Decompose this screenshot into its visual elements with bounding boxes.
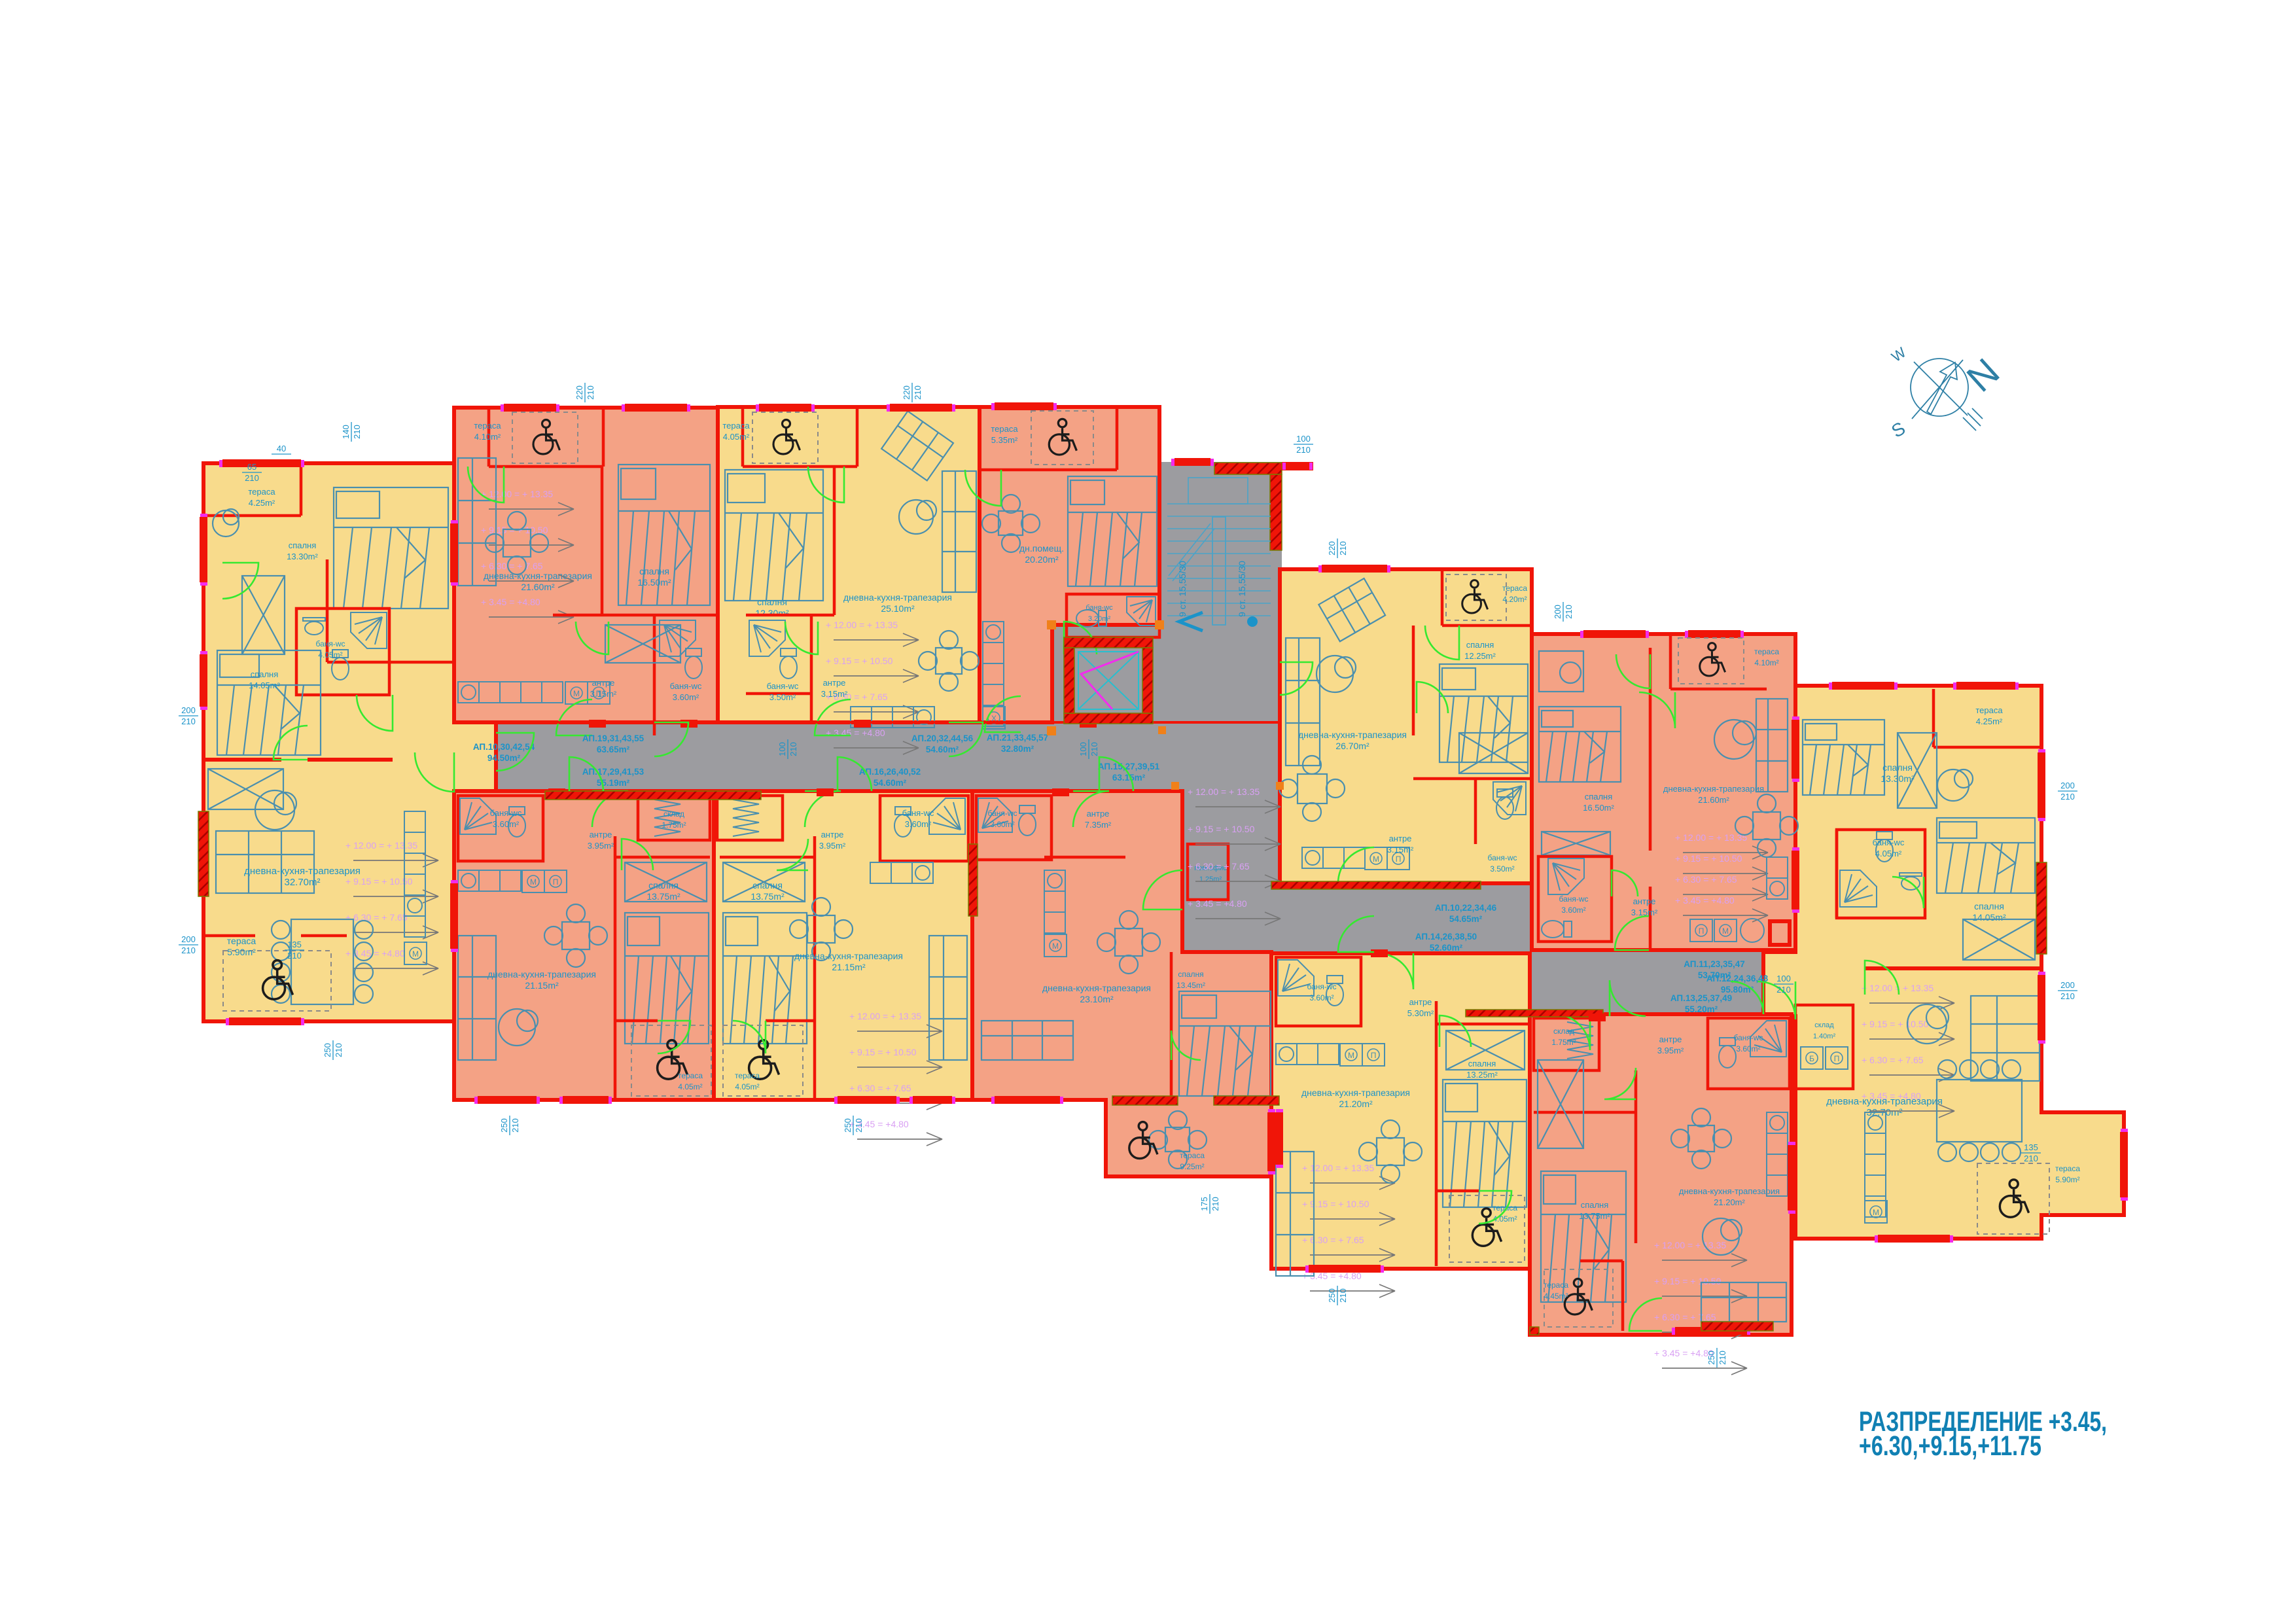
svg-text:100: 100 [777, 742, 787, 756]
svg-text:баня-wc: баня-wc [902, 808, 934, 818]
svg-text:3.50m²: 3.50m² [1490, 864, 1514, 874]
svg-text:спалня: спалня [648, 880, 679, 891]
svg-text:склад: склад [1553, 1027, 1574, 1036]
svg-text:П: П [596, 689, 602, 698]
svg-text:+ 6.30 = + 7.65: + 6.30 = + 7.65 [849, 1083, 911, 1093]
svg-text:+ 9.15 = + 10.50: + 9.15 = + 10.50 [1302, 1199, 1369, 1209]
svg-text:14.05m²: 14.05m² [249, 680, 280, 690]
svg-text:+ 6.30 = + 7.65: + 6.30 = + 7.65 [1862, 1055, 1924, 1065]
svg-text:3.60m²: 3.60m² [493, 819, 520, 829]
svg-text:40: 40 [277, 444, 286, 453]
svg-text:55.20m²: 55.20m² [1685, 1004, 1718, 1014]
svg-text:антре: антре [592, 678, 615, 688]
svg-text:АП.21,33,45,57: АП.21,33,45,57 [987, 733, 1048, 743]
svg-text:+ 12.00 = + 13.35: + 12.00 = + 13.35 [826, 620, 898, 630]
svg-text:32.70m²: 32.70m² [284, 877, 320, 888]
svg-text:210: 210 [1718, 1350, 1727, 1365]
svg-text:16.50m²: 16.50m² [1583, 803, 1614, 813]
svg-text:13.75m²: 13.75m² [751, 891, 785, 902]
svg-text:210: 210 [586, 385, 595, 400]
svg-text:баня-wc: баня-wc [767, 681, 799, 691]
svg-text:+ 3.45 = +4.80: + 3.45 = +4.80 [1862, 1091, 1921, 1101]
svg-text:3.60m²: 3.60m² [905, 819, 932, 829]
svg-text:дневна-кухня-трапезария: дневна-кухня-трапезария [794, 951, 903, 961]
svg-text:П: П [1371, 1051, 1377, 1060]
svg-text:тераса: тераса [1502, 584, 1527, 593]
svg-text:3.15m²: 3.15m² [1387, 845, 1414, 855]
svg-text:спалня: спалня [1466, 640, 1494, 650]
svg-text:210: 210 [334, 1043, 344, 1057]
svg-text:3.15m²: 3.15m² [821, 689, 848, 699]
svg-text:20.20m²: 20.20m² [1025, 554, 1059, 565]
svg-text:210: 210 [352, 425, 362, 439]
svg-text:спалня: спалня [757, 597, 787, 607]
svg-text:М: М [412, 949, 419, 959]
svg-text:94.50m²: 94.50m² [487, 753, 521, 763]
svg-text:4.25m²: 4.25m² [249, 498, 275, 508]
svg-text:Б: Б [1809, 1054, 1814, 1063]
svg-text:спалня: спалня [752, 880, 783, 891]
svg-text:антре: антре [1633, 896, 1656, 906]
svg-text:+ 3.45 = +4.80: + 3.45 = +4.80 [1188, 898, 1247, 909]
svg-text:баня-wc: баня-wc [670, 681, 702, 691]
svg-text:М: М [1373, 855, 1379, 864]
svg-text:+ 9.15 = + 10.50: + 9.15 = + 10.50 [1675, 853, 1742, 864]
svg-text:210: 210 [245, 473, 259, 483]
svg-text:26.70m²: 26.70m² [1335, 741, 1369, 751]
svg-text:АП.13,25,37,49: АП.13,25,37,49 [1670, 993, 1732, 1003]
svg-text:дневна-кухня-трапезария: дневна-кухня-трапезария [1663, 784, 1764, 794]
svg-text:+ 6.30 = + 7.65: + 6.30 = + 7.65 [1654, 1312, 1716, 1322]
svg-text:спалня: спалня [251, 669, 279, 679]
svg-text:антре: антре [1389, 834, 1412, 843]
svg-text:175: 175 [1199, 1197, 1209, 1211]
svg-text:антре: антре [1409, 997, 1432, 1007]
svg-text:12.25m²: 12.25m² [1464, 651, 1496, 661]
svg-text:14.05m²: 14.05m² [1972, 912, 2006, 923]
svg-text:100: 100 [1296, 434, 1311, 444]
svg-text:М: М [1348, 1051, 1354, 1060]
svg-text:140: 140 [341, 425, 351, 439]
svg-text:250: 250 [499, 1118, 509, 1133]
svg-text:+ 9.15 = + 10.50: + 9.15 = + 10.50 [1188, 824, 1255, 834]
svg-text:тераса: тераса [1544, 1280, 1568, 1290]
svg-text:1.40m²: 1.40m² [1813, 1033, 1836, 1040]
svg-text:200: 200 [181, 934, 196, 944]
svg-text:тераса: тераса [474, 421, 501, 431]
svg-text:+ 12.00 = + 13.35: + 12.00 = + 13.35 [345, 840, 417, 851]
svg-text:210: 210 [854, 1118, 864, 1133]
svg-text:210: 210 [181, 716, 196, 726]
svg-text:210: 210 [2060, 792, 2075, 802]
svg-text:3.60m²: 3.60m² [1561, 906, 1585, 915]
svg-text:спалня: спалня [1581, 1200, 1609, 1210]
svg-text:32.80m²: 32.80m² [1001, 744, 1034, 754]
svg-text:тераса: тераса [678, 1071, 703, 1080]
svg-text:3.60m²: 3.60m² [673, 692, 699, 702]
svg-text:1.75m²: 1.75m² [1551, 1038, 1576, 1047]
svg-text:23.10m²: 23.10m² [1080, 994, 1114, 1004]
svg-text:5.35m²: 5.35m² [991, 435, 1018, 445]
svg-text:3.95m²: 3.95m² [1657, 1046, 1684, 1055]
svg-text:баня-wc: баня-wc [315, 639, 345, 648]
svg-text:210: 210 [1296, 445, 1311, 455]
svg-text:220: 220 [902, 385, 911, 400]
svg-text:13.75m²: 13.75m² [1579, 1211, 1610, 1221]
svg-text:54.60m²: 54.60m² [874, 778, 907, 788]
svg-text:210: 210 [1564, 605, 1574, 619]
svg-text:220: 220 [1327, 541, 1337, 556]
svg-text:54.60m²: 54.60m² [926, 745, 959, 754]
svg-text:дн.помещ.: дн.помещ. [1019, 543, 1064, 554]
svg-text:П: П [1396, 855, 1402, 864]
svg-text:9 ст. 15,55/30: 9 ст. 15,55/30 [1237, 561, 1247, 617]
svg-text:+ 9.15 = + 10.50: + 9.15 = + 10.50 [849, 1047, 917, 1057]
svg-text:3.95m²: 3.95m² [819, 841, 846, 851]
svg-text:13.30m²: 13.30m² [287, 552, 318, 561]
svg-text:4.45m²: 4.45m² [1544, 1292, 1568, 1301]
svg-text:135: 135 [2024, 1142, 2038, 1152]
svg-text:+ 6.30 = + 7.65: + 6.30 = + 7.65 [481, 561, 543, 571]
svg-text:210: 210 [913, 385, 923, 400]
svg-text:баня-wc: баня-wc [1307, 982, 1336, 991]
svg-text:АП.20,32,44,56: АП.20,32,44,56 [911, 733, 974, 743]
svg-text:П: П [553, 877, 559, 887]
svg-text:спалня: спалня [1585, 792, 1613, 802]
svg-text:спалня: спалня [1974, 901, 2004, 911]
svg-text:дневна-кухня-трапезария: дневна-кухня-трапезария [244, 866, 361, 877]
svg-text:баня-wc: баня-wc [1559, 894, 1588, 904]
svg-text:дневна-кухня-трапезария: дневна-кухня-трапезария [1042, 983, 1151, 993]
svg-text:М: М [1873, 1208, 1879, 1217]
svg-text:210: 210 [510, 1118, 520, 1133]
svg-text:220: 220 [574, 385, 584, 400]
svg-text:тераса: тераса [227, 936, 256, 946]
svg-text:+ 9.15 = + 10.50: + 9.15 = + 10.50 [1862, 1019, 1929, 1029]
svg-text:баня-wc: баня-wc [1733, 1033, 1763, 1042]
svg-text:250: 250 [843, 1118, 853, 1133]
svg-text:250: 250 [323, 1043, 332, 1057]
svg-text:+ 3.45 = +4.80: + 3.45 = +4.80 [481, 597, 540, 607]
svg-text:210: 210 [788, 742, 798, 756]
svg-text:+ 3.45 = +4.80: + 3.45 = +4.80 [1675, 895, 1735, 906]
svg-text:+ 6.30 = + 7.65: + 6.30 = + 7.65 [1675, 874, 1737, 885]
svg-text:21.20m²: 21.20m² [1339, 1099, 1373, 1109]
svg-text:7.35m²: 7.35m² [1085, 820, 1112, 830]
svg-text:П: П [1699, 927, 1704, 936]
svg-text:13.75m²: 13.75m² [646, 891, 680, 902]
svg-text:+ 12.00 = + 13.35: + 12.00 = + 13.35 [849, 1011, 921, 1021]
svg-text:АП.14,26,38,50: АП.14,26,38,50 [1415, 932, 1477, 942]
svg-text:13.25m²: 13.25m² [1466, 1070, 1498, 1080]
svg-text:М: М [573, 689, 580, 698]
svg-text:баня-wc: баня-wc [1086, 604, 1113, 612]
svg-text:210: 210 [1338, 541, 1348, 556]
svg-text:4.10m²: 4.10m² [474, 432, 501, 442]
svg-text:+ 9.15 = + 10.50: + 9.15 = + 10.50 [1654, 1276, 1722, 1286]
svg-text:135: 135 [287, 940, 302, 949]
svg-text:210: 210 [181, 945, 196, 955]
svg-text:52.60m²: 52.60m² [1430, 943, 1463, 953]
svg-text:210: 210 [1338, 1288, 1348, 1303]
svg-text:баня-wc: баня-wc [987, 809, 1017, 818]
svg-text:100: 100 [1078, 742, 1088, 756]
svg-text:дневна-кухня-трапезария: дневна-кухня-трапезария [1679, 1186, 1780, 1196]
svg-text:1.25m²: 1.25m² [1199, 875, 1222, 883]
svg-text:3.20m²: 3.20m² [1088, 615, 1111, 623]
svg-text:АП.11,23,35,47: АП.11,23,35,47 [1684, 959, 1745, 969]
svg-text:+ 12.00 = + 13.35: + 12.00 = + 13.35 [1302, 1163, 1374, 1173]
svg-text:тераса: тераса [248, 487, 275, 497]
svg-text:21.60m²: 21.60m² [1698, 795, 1729, 805]
svg-text:баня-wc: баня-wc [1873, 838, 1905, 847]
svg-text:21.20m²: 21.20m² [1714, 1197, 1745, 1207]
svg-text:+ 3.45 = +4.80: + 3.45 = +4.80 [1654, 1348, 1714, 1358]
svg-text:склад: склад [663, 809, 684, 819]
svg-text:100: 100 [1776, 974, 1791, 983]
svg-text:65: 65 [247, 462, 256, 472]
svg-text:12.30m²: 12.30m² [755, 608, 789, 618]
svg-text:210: 210 [1089, 742, 1099, 756]
svg-text:+ 12.00 = + 13.35: + 12.00 = + 13.35 [481, 489, 553, 499]
svg-text:1.75m²: 1.75m² [662, 821, 686, 830]
svg-text:дневна-кухня-трапезария: дневна-кухня-трапезария [487, 969, 596, 980]
svg-text:25.10m²: 25.10m² [881, 603, 915, 614]
svg-text:200: 200 [2060, 980, 2075, 990]
svg-text:спалня: спалня [639, 566, 669, 576]
svg-text:+6.30,+9.15,+11.75: +6.30,+9.15,+11.75 [1859, 1430, 2041, 1462]
svg-text:склад: склад [1814, 1021, 1834, 1029]
svg-text:АП.10,22,34,46: АП.10,22,34,46 [1435, 903, 1497, 913]
svg-text:210: 210 [287, 951, 302, 961]
svg-text:54.65m²: 54.65m² [1449, 914, 1483, 924]
svg-text:5.90m²: 5.90m² [227, 947, 256, 957]
svg-text:21.60m²: 21.60m² [521, 582, 555, 592]
svg-text:16.50m²: 16.50m² [637, 577, 671, 588]
svg-text:+ 12.00 = + 13.35: + 12.00 = + 13.35 [1675, 832, 1747, 843]
svg-text:М: М [1052, 942, 1059, 951]
svg-text:210: 210 [2024, 1154, 2038, 1163]
svg-text:антре: антре [1659, 1034, 1682, 1044]
svg-text:4.05m²: 4.05m² [678, 1082, 702, 1091]
svg-text:дневна-кухня-трапезария: дневна-кухня-трапезария [843, 592, 952, 603]
svg-text:тераса: тераса [735, 1071, 760, 1080]
svg-text:3.95m²: 3.95m² [588, 841, 614, 851]
svg-text:63.65m²: 63.65m² [597, 745, 630, 754]
svg-text:5.30m²: 5.30m² [1407, 1008, 1434, 1018]
svg-text:3.60m²: 3.60m² [990, 820, 1014, 829]
svg-text:АП.17,29,41,53: АП.17,29,41,53 [582, 767, 645, 777]
svg-text:спалня: спалня [1178, 970, 1203, 979]
svg-text:М: М [1722, 927, 1729, 936]
svg-text:4.25m²: 4.25m² [1976, 716, 2003, 726]
svg-text:4.05m²: 4.05m² [735, 1082, 759, 1091]
svg-text:антре: антре [1087, 809, 1110, 819]
svg-text:4.05m²: 4.05m² [1875, 849, 1902, 858]
svg-text:200: 200 [1553, 605, 1563, 619]
svg-text:200: 200 [181, 705, 196, 715]
svg-text:антре: антре [821, 830, 844, 839]
svg-text:+ 6.30 = + 7.65: + 6.30 = + 7.65 [345, 912, 408, 923]
svg-text:спалня: спалня [1468, 1059, 1496, 1068]
svg-text:баня-wc: баня-wc [490, 808, 522, 818]
svg-text:антре: антре [823, 678, 846, 688]
svg-text:тераса: тераса [1754, 647, 1779, 656]
svg-text:баня-wc: баня-wc [1487, 853, 1517, 862]
svg-text:210: 210 [2060, 991, 2075, 1001]
svg-text:4.20m²: 4.20m² [1502, 595, 1527, 604]
svg-text:дневна-кухня-трапезария: дневна-кухня-трапезария [484, 571, 592, 581]
svg-text:9 ст. 15,55/30: 9 ст. 15,55/30 [1177, 561, 1188, 617]
svg-text:250: 250 [1327, 1288, 1337, 1303]
svg-text:4.05m²: 4.05m² [723, 432, 750, 442]
svg-text:тераса: тераса [991, 424, 1018, 434]
svg-text:3.60m²: 3.60m² [1309, 993, 1333, 1002]
svg-text:4.10m²: 4.10m² [1754, 658, 1778, 667]
svg-text:тераса: тераса [2055, 1164, 2080, 1173]
svg-text:тераса: тераса [1180, 1151, 1205, 1160]
svg-text:3.50m²: 3.50m² [769, 692, 796, 702]
svg-text:3.60m²: 3.60m² [1736, 1044, 1760, 1053]
svg-text:дневна-кухня-трапезария: дневна-кухня-трапезария [1298, 730, 1407, 740]
svg-text:5.90m²: 5.90m² [2055, 1175, 2079, 1184]
svg-text:4.05m²: 4.05m² [318, 650, 342, 660]
svg-text:+ 6.30 = + 7.65: + 6.30 = + 7.65 [1188, 861, 1250, 872]
svg-text:дневна-кухня-трапезария: дневна-кухня-трапезария [1301, 1087, 1410, 1098]
svg-text:П: П [1834, 1054, 1840, 1063]
svg-text:АП.19,31,43,55: АП.19,31,43,55 [582, 733, 645, 743]
svg-text:21.15m²: 21.15m² [832, 962, 866, 972]
svg-text:21.15m²: 21.15m² [525, 980, 559, 991]
svg-text:тераса: тераса [722, 421, 750, 431]
svg-text:13.45m²: 13.45m² [1176, 981, 1205, 990]
svg-text:250: 250 [1706, 1350, 1716, 1365]
svg-text:210: 210 [1776, 985, 1791, 995]
svg-text:+ 9.15 = + 10.50: + 9.15 = + 10.50 [345, 876, 413, 887]
svg-text:антре: антре [590, 830, 612, 839]
svg-text:АП.10,30,42,54: АП.10,30,42,54 [473, 742, 535, 752]
svg-text:+ 3.45 = +4.80: + 3.45 = +4.80 [826, 728, 885, 738]
svg-text:спалня: спалня [289, 540, 317, 550]
svg-text:+ 6.30 = + 7.65: + 6.30 = + 7.65 [1302, 1235, 1364, 1245]
svg-text:АП.15,27,39,51: АП.15,27,39,51 [1098, 762, 1160, 771]
svg-text:200: 200 [2060, 781, 2075, 790]
svg-text:М: М [530, 877, 537, 887]
svg-text:+ 12.00 = + 13.35: + 12.00 = + 13.35 [1654, 1240, 1726, 1250]
svg-text:+ 12.00 = + 13.35: + 12.00 = + 13.35 [1188, 786, 1260, 797]
svg-text:+ 9.15 = + 10.50: + 9.15 = + 10.50 [826, 656, 893, 666]
svg-text:9.25m²: 9.25m² [1180, 1162, 1204, 1171]
svg-text:тераса: тераса [1975, 705, 2003, 715]
svg-text:210: 210 [1210, 1197, 1220, 1211]
